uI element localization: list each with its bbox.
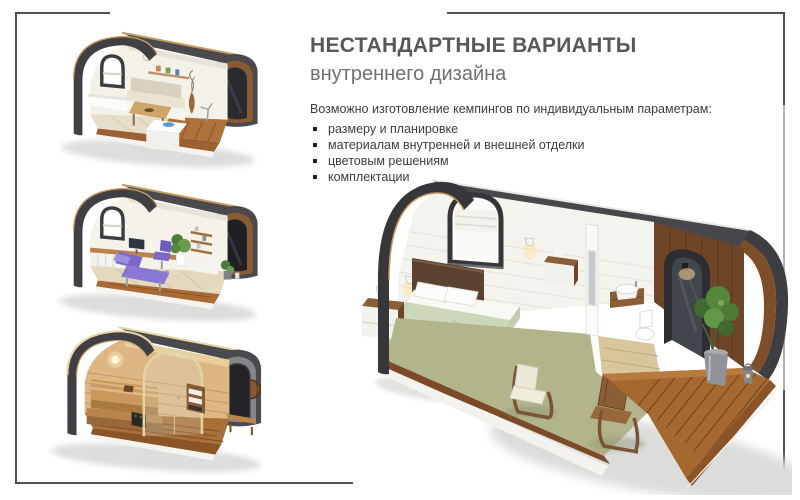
feature-bullet-list: размеру и планировке материалам внутренн… <box>310 121 750 185</box>
page-title: НЕСТАНДАРТНЫЕ ВАРИАНТЫ <box>310 34 750 58</box>
sauna-pod-svg <box>24 318 282 476</box>
lantern <box>743 364 753 384</box>
border-gap-top <box>110 6 447 20</box>
dining-pod-svg <box>30 24 280 174</box>
treatment-pod-illustration <box>30 176 280 326</box>
slide-text-block: НЕСТАНДАРТНЫЕ ВАРИАНТЫ внутреннего дизай… <box>310 34 750 185</box>
arched-window <box>102 208 123 239</box>
intro-text: Возможно изготовление кемпингов по индив… <box>310 102 750 116</box>
arched-window <box>448 195 503 268</box>
bullet-item: цветовым решениям <box>310 153 750 169</box>
treatment-pod-svg <box>30 176 280 326</box>
arched-window <box>102 56 123 87</box>
bedroom-pod-svg <box>352 160 792 495</box>
dining-pod-illustration <box>30 24 280 174</box>
bullet-item: комплектации <box>310 169 750 185</box>
sauna-pod-illustration <box>24 318 282 476</box>
bedroom-pod-illustration <box>352 160 792 495</box>
bullet-item: размеру и планировке <box>310 121 750 137</box>
page-subtitle: внутреннего дизайна <box>310 63 750 86</box>
bullet-item: материалам внутренней и внешней отделки <box>310 137 750 153</box>
